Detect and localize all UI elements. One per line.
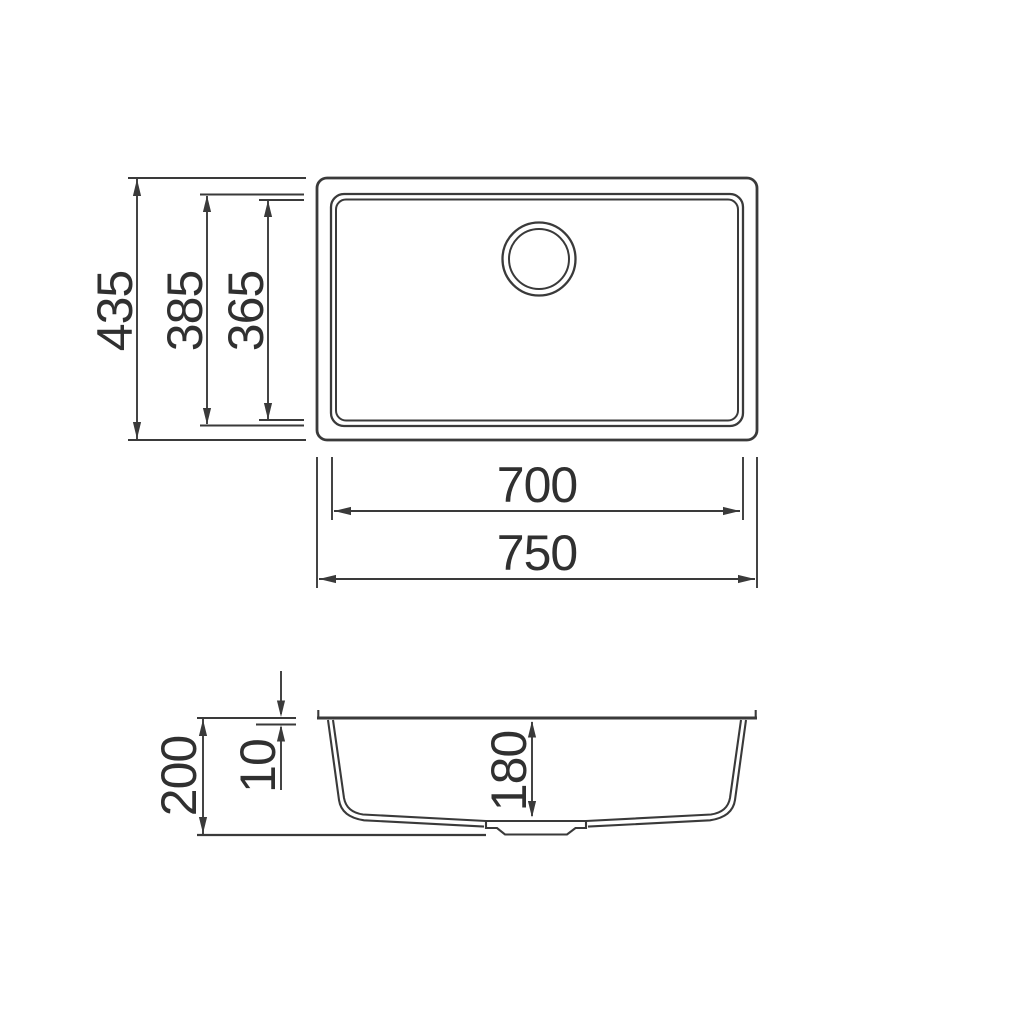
dim-label-bowl-depth: 385 — [157, 271, 213, 351]
dim-bowl-inner-depth: 180 — [481, 721, 537, 818]
arrowhead-down — [264, 403, 272, 420]
dim-rim-thickness: 10 — [230, 671, 296, 793]
dim-bowl-floor-depth: 365 — [218, 200, 304, 420]
arrowhead-down — [199, 817, 207, 834]
arrowhead-left — [319, 575, 336, 583]
arrowhead-down — [133, 422, 141, 439]
section-view: 200 10 180 — [151, 671, 757, 835]
dim-label-bowl-width: 700 — [497, 457, 577, 513]
drain-outer-circle — [503, 223, 576, 296]
dim-label-rim-thickness: 10 — [230, 739, 286, 793]
dim-label-overall-width: 750 — [497, 525, 577, 581]
drain-recess — [486, 821, 586, 835]
top-view: 435 385 365 — [87, 178, 757, 588]
arrowhead-down — [277, 701, 285, 718]
arrowhead-up — [203, 196, 211, 213]
arrowhead-right — [738, 575, 755, 583]
arrowhead-up — [133, 179, 141, 196]
arrowhead-right — [723, 507, 740, 515]
arrowhead-down — [203, 408, 211, 425]
bowl-inner-profile — [333, 720, 741, 821]
dim-label-bowl-inner-depth: 180 — [481, 731, 537, 811]
dim-label-overall-depth: 435 — [87, 271, 143, 351]
arrowhead-up — [277, 725, 285, 742]
arrowhead-up — [264, 201, 272, 218]
bowl-floor-edge — [336, 200, 738, 421]
arrowhead-up — [199, 720, 207, 737]
sink-outer-outline — [317, 178, 757, 440]
sink-technical-drawing: 435 385 365 — [0, 0, 1024, 1024]
arrowhead-left — [334, 507, 351, 515]
dim-label-overall-height: 200 — [151, 736, 207, 816]
drain-inner-circle — [509, 229, 569, 289]
dim-overall-width: 750 — [319, 525, 755, 583]
dim-label-bowl-floor-depth: 365 — [218, 271, 274, 351]
